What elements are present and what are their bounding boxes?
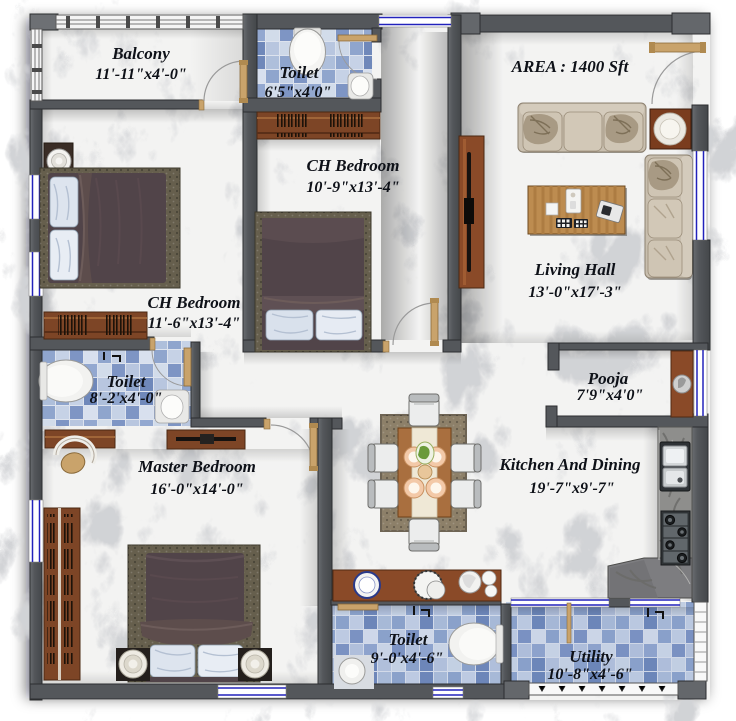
svg-text:Balcony: Balcony (111, 44, 170, 63)
svg-text:Kitchen And Dining: Kitchen And Dining (498, 455, 641, 474)
svg-text:Toilet: Toilet (388, 630, 428, 649)
svg-text:13'-0"x17'-3": 13'-0"x17'-3" (528, 284, 621, 301)
svg-text:Master Bedroom: Master Bedroom (137, 457, 256, 476)
svg-text:9'-0'x4'-6": 9'-0'x4'-6" (371, 650, 444, 667)
svg-text:CH Bedroom: CH Bedroom (147, 293, 240, 312)
svg-text:11'-11"x4'-0": 11'-11"x4'-0" (95, 66, 187, 83)
svg-text:Living Hall: Living Hall (534, 260, 616, 279)
svg-text:10'-8"x4'-6": 10'-8"x4'-6" (547, 666, 632, 683)
svg-text:10'-9"x13'-4": 10'-9"x13'-4" (306, 179, 399, 196)
svg-text:6'5"x4'0": 6'5"x4'0" (265, 84, 332, 101)
svg-text:8'-2'x4'-0": 8'-2'x4'-0" (90, 390, 163, 407)
svg-text:16'-0"x14'-0": 16'-0"x14'-0" (150, 481, 243, 498)
svg-text:Toilet: Toilet (279, 63, 319, 82)
svg-text:Utility: Utility (569, 647, 613, 666)
svg-text:11'-6"x13'-4": 11'-6"x13'-4" (148, 315, 240, 332)
svg-text:CH Bedroom: CH Bedroom (306, 156, 399, 175)
svg-text:Pooja: Pooja (587, 369, 629, 388)
svg-text:19'-7"x9'-7": 19'-7"x9'-7" (529, 480, 614, 497)
svg-text:Toilet: Toilet (106, 372, 146, 391)
svg-text:AREA : 1400 Sft: AREA : 1400 Sft (511, 57, 630, 76)
svg-text:7'9"x4'0": 7'9"x4'0" (577, 387, 644, 404)
